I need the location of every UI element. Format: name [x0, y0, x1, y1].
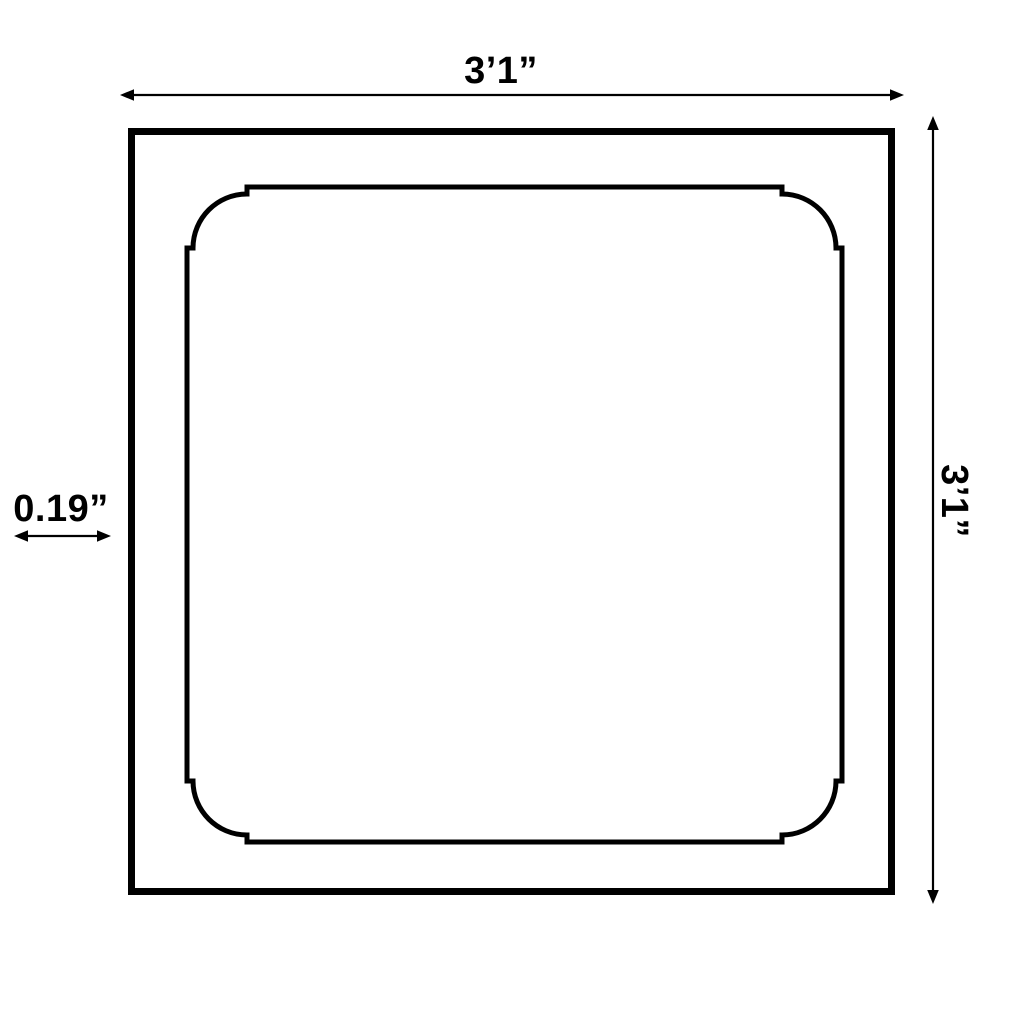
thickness-dimension-label: 0.19” [13, 490, 108, 528]
outer-frame-square [132, 132, 892, 892]
thickness-arrowhead-left-icon [14, 530, 28, 542]
width-arrowhead-right-icon [890, 89, 904, 101]
diagram-drawing [0, 0, 1024, 1024]
thickness-dimension-arrow [14, 530, 111, 542]
dimension-diagram: 3’1” 3’1” 0.19” [0, 0, 1024, 1024]
width-arrowhead-left-icon [120, 89, 134, 101]
thickness-arrowhead-right-icon [97, 530, 111, 542]
height-dimension-label: 3’1” [935, 464, 973, 538]
inner-panel-outline [187, 187, 842, 842]
width-dimension-label: 3’1” [464, 52, 538, 90]
height-arrowhead-bottom-icon [927, 890, 939, 904]
height-arrowhead-top-icon [927, 116, 939, 130]
